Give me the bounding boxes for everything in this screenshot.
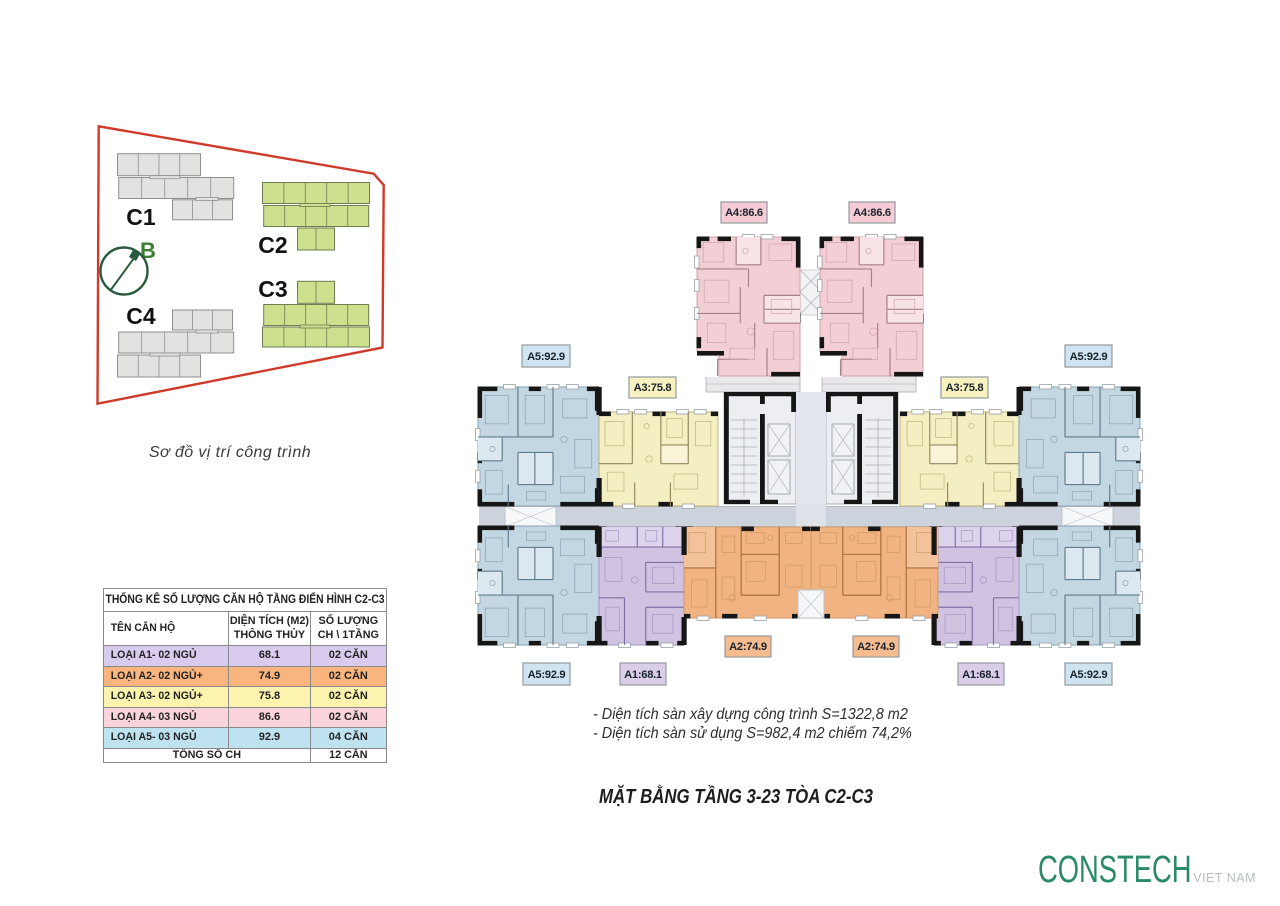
svg-text:A4:86.6: A4:86.6 <box>853 207 891 219</box>
svg-text:A2:74.9: A2:74.9 <box>729 641 767 653</box>
svg-text:B: B <box>140 238 156 263</box>
svg-text:C1: C1 <box>126 204 156 230</box>
svg-text:A5:92.9: A5:92.9 <box>1070 351 1108 363</box>
svg-text:C2: C2 <box>258 232 287 258</box>
svg-text:A5:92.9: A5:92.9 <box>528 669 566 681</box>
svg-text:A5:92.9: A5:92.9 <box>527 351 565 363</box>
svg-text:A5:92.9: A5:92.9 <box>1070 669 1108 681</box>
svg-text:A1:68.1: A1:68.1 <box>624 669 662 681</box>
svg-text:A4:86.6: A4:86.6 <box>725 207 763 219</box>
svg-text:A3:75.8: A3:75.8 <box>946 382 984 394</box>
svg-text:C4: C4 <box>126 303 156 329</box>
svg-text:C3: C3 <box>258 276 287 302</box>
svg-text:A2:74.9: A2:74.9 <box>857 641 895 653</box>
svg-text:A1:68.1: A1:68.1 <box>962 669 1000 681</box>
svg-text:A3:75.8: A3:75.8 <box>634 382 672 394</box>
